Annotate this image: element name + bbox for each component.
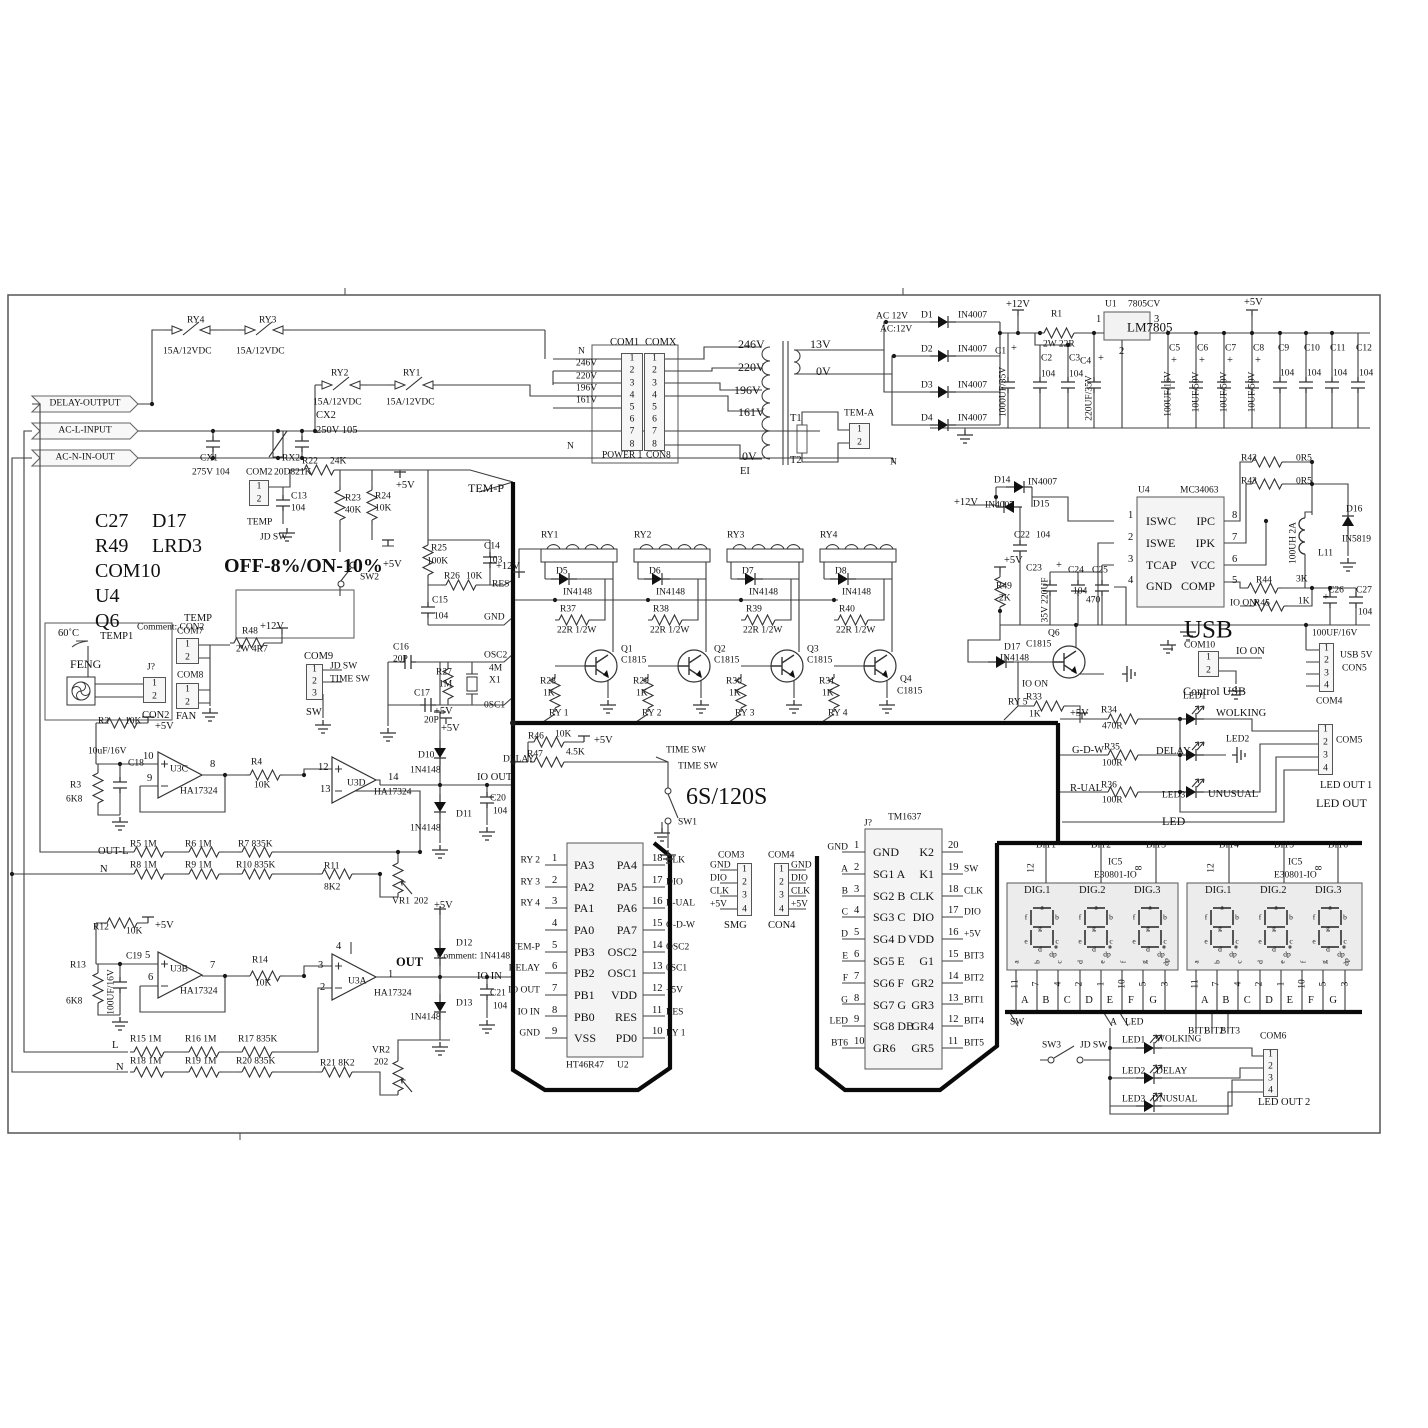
res-r35 (1104, 750, 1142, 760)
tm1637-body (865, 829, 942, 1069)
res-r29 (643, 674, 653, 712)
transistor-q4 (864, 650, 896, 682)
diode-d17 (988, 656, 1014, 668)
res-r38 (648, 615, 686, 625)
diode-d13 (434, 994, 446, 1020)
cap-c2 (1033, 377, 1047, 393)
ground-icon (600, 700, 616, 713)
res-r33 (1030, 701, 1068, 711)
cap-c5 (1161, 377, 1175, 393)
res-r3 (93, 769, 103, 807)
res-r37 (555, 615, 593, 625)
res-r39 (741, 615, 779, 625)
ground-icon (479, 1020, 495, 1033)
res-r1 (1040, 328, 1078, 338)
res-r47 (530, 757, 568, 767)
relay-contact-ry1 (388, 377, 440, 390)
schematic-canvas (0, 0, 1428, 1428)
switch-sw2 (350, 562, 356, 568)
res-r8 (130, 869, 168, 879)
relay-contact-ry3 (238, 322, 290, 335)
cap-c6 (1189, 377, 1203, 393)
diode-d8 (830, 573, 856, 585)
relay-coil-ry2 (634, 545, 710, 562)
res-r9 (185, 869, 223, 879)
plus5v-icon (434, 909, 446, 915)
cap-c27 (1349, 592, 1363, 608)
plus5v-icon (440, 718, 452, 724)
ground-icon (786, 700, 802, 713)
opamp-u3a (332, 954, 376, 1000)
res-r40 (834, 615, 872, 625)
relay-coil-ry1 (541, 545, 617, 562)
cap-c14 (483, 552, 497, 568)
led1-arrows-icon (1192, 706, 1204, 714)
res-r19 (185, 1067, 223, 1077)
res-r5 (130, 847, 168, 857)
crystal-x1 (466, 670, 478, 698)
cap-c26 (1323, 592, 1337, 608)
ground-icon (879, 700, 895, 713)
plus5v-icon (1246, 310, 1258, 316)
res-r25 (423, 541, 433, 579)
cap-c22 (1013, 540, 1027, 556)
res-r23 (335, 486, 345, 524)
diode-d14 (1006, 481, 1032, 493)
lm7805-body (1104, 312, 1150, 340)
diode-d3 (930, 386, 956, 398)
ground-icon (1340, 558, 1356, 571)
led1-b-arrows-icon (1150, 1035, 1162, 1043)
diode-d7 (737, 573, 763, 585)
switch-sw1-b (665, 818, 671, 824)
cap-c23 (1043, 580, 1057, 596)
diode-d4 (930, 419, 956, 431)
res-r6 (185, 847, 223, 857)
res-r20 (238, 1067, 276, 1077)
cap-c7 (1217, 377, 1231, 393)
relay-contact-ry4 (165, 322, 217, 335)
cap-c21 (480, 984, 494, 1000)
transistor-q6 (1053, 646, 1085, 678)
cap-c9 (1273, 377, 1287, 393)
ht46r47-body (567, 843, 643, 1057)
ground-icon (1122, 666, 1135, 682)
diode-d6 (644, 573, 670, 585)
cap-c1 (1001, 377, 1015, 393)
transistor-q1 (585, 650, 617, 682)
res-r7 (238, 847, 276, 857)
res-r18 (130, 1067, 168, 1077)
region-boxes (32, 312, 1362, 1069)
ground-icon (112, 817, 128, 830)
res-r4 (246, 770, 284, 780)
ground-icon (957, 430, 973, 443)
ground-icon (1232, 747, 1245, 763)
relay-coil-ry3 (727, 545, 803, 562)
temp-fan-box (45, 623, 172, 720)
cap-c13 (276, 495, 290, 511)
opamp-u3b (158, 952, 202, 998)
components (10, 310, 1365, 1112)
res-r14 (246, 971, 284, 981)
cap-c24 (1071, 580, 1085, 596)
cap-c8 (1245, 377, 1259, 393)
res-r24 (367, 486, 377, 524)
cap-c3 (1061, 377, 1075, 393)
led1-b (1136, 1042, 1162, 1054)
cap-c25 (1095, 580, 1109, 596)
res-r28 (550, 674, 560, 712)
cap-c18 (113, 777, 127, 793)
plus5v-icon (382, 540, 394, 546)
relay-contact-ry2 (315, 377, 367, 390)
plus12v-icon (1012, 310, 1024, 316)
diode-d15 (996, 501, 1022, 513)
ground-icon (432, 1042, 448, 1055)
res-r12 (103, 918, 141, 928)
res-r45 (1250, 601, 1288, 611)
plus5v-icon (994, 567, 1006, 573)
res-r42 (1248, 457, 1286, 467)
cap-c19 (113, 977, 127, 993)
pot-vr2 (393, 1057, 412, 1095)
ground-icon (1160, 640, 1176, 653)
res-r11 (318, 869, 356, 879)
res-r10 (238, 869, 276, 879)
led3-arrows-icon (1192, 779, 1204, 787)
ground-icon (479, 827, 495, 840)
diode-d12 (434, 940, 446, 966)
cap-c16 (400, 655, 416, 669)
cap-c20 (480, 792, 494, 808)
res-r44 (1244, 583, 1282, 593)
ground-icon (315, 720, 331, 733)
plus5v-icon (578, 736, 590, 742)
ground-icon (112, 1017, 128, 1030)
fan-feng-icon (67, 677, 95, 705)
mc34063-body (1137, 497, 1224, 607)
ground-icon (380, 728, 396, 741)
transistor-q2 (678, 650, 710, 682)
ground-icon (1228, 686, 1244, 699)
plus5v-icon (1076, 713, 1088, 719)
res-r34 (1104, 714, 1142, 724)
switch-sw1 (665, 788, 671, 794)
setpoint-box (236, 590, 354, 638)
transformer-fuse (797, 425, 807, 453)
diode-d11 (434, 794, 446, 820)
cap-c15 (421, 602, 435, 618)
wires-thin (12, 316, 1370, 1114)
res-r13 (93, 969, 103, 1007)
cap-cx1 (206, 436, 220, 452)
cap-c11 (1325, 377, 1339, 393)
res-r48 (230, 638, 268, 648)
cap-c12 (1351, 377, 1365, 393)
opamp-u3c (158, 752, 202, 798)
led2-b-arrows-icon (1150, 1065, 1162, 1073)
relay-coil-ry4 (820, 545, 896, 562)
ground-icon (279, 528, 295, 541)
diode-d10 (434, 740, 446, 766)
varistor-rx2 (269, 431, 287, 457)
banner-ac-l-input (32, 423, 138, 439)
transistor-q3 (771, 650, 803, 682)
pot-vr1 (393, 859, 412, 897)
banner-delay-output (32, 396, 138, 412)
plus5v-icon (434, 712, 446, 718)
banner-ac-n-in-out (32, 450, 138, 466)
res-r49 (995, 573, 1005, 611)
cap-c4 (1087, 377, 1101, 393)
plus5v-icon (142, 917, 154, 923)
res-r15 (130, 1047, 168, 1057)
switch-sw2-b (338, 581, 344, 587)
res-r36 (1104, 787, 1142, 797)
res-r43 (1248, 479, 1286, 489)
res-r46 (530, 737, 568, 747)
diode-d16 (1342, 508, 1354, 534)
res-r22 (300, 465, 338, 475)
res-r26 (442, 580, 480, 590)
res-r27 (443, 665, 453, 703)
ground-icon (693, 700, 709, 713)
ground-icon (432, 845, 448, 858)
ground-icon (1180, 627, 1196, 640)
res-r21 (318, 1067, 356, 1077)
plus5v-icon (394, 472, 406, 478)
schematic-page: { "sections": { "io_flags": [["DELAY-OUT… (0, 0, 1428, 1428)
cap-c10 (1299, 377, 1313, 393)
diode-d1 (930, 316, 956, 328)
diode-d2 (930, 350, 956, 362)
led2-b (1136, 1072, 1162, 1084)
res-r17 (238, 1047, 276, 1057)
led3-b (1136, 1100, 1162, 1112)
opamp-u3d (332, 757, 376, 803)
diode-d5 (551, 573, 577, 585)
inductor-l11 (1299, 518, 1305, 554)
led3-b-arrows-icon (1150, 1093, 1162, 1101)
led2-arrows-icon (1192, 742, 1204, 750)
switch-sw3 (1048, 1057, 1054, 1063)
res-r30 (736, 674, 746, 712)
cap-cx2 (295, 436, 309, 452)
ground-icon (202, 708, 218, 721)
res-r31 (829, 674, 839, 712)
switch-jd-sw (1077, 1057, 1083, 1063)
res-r16 (185, 1047, 223, 1057)
